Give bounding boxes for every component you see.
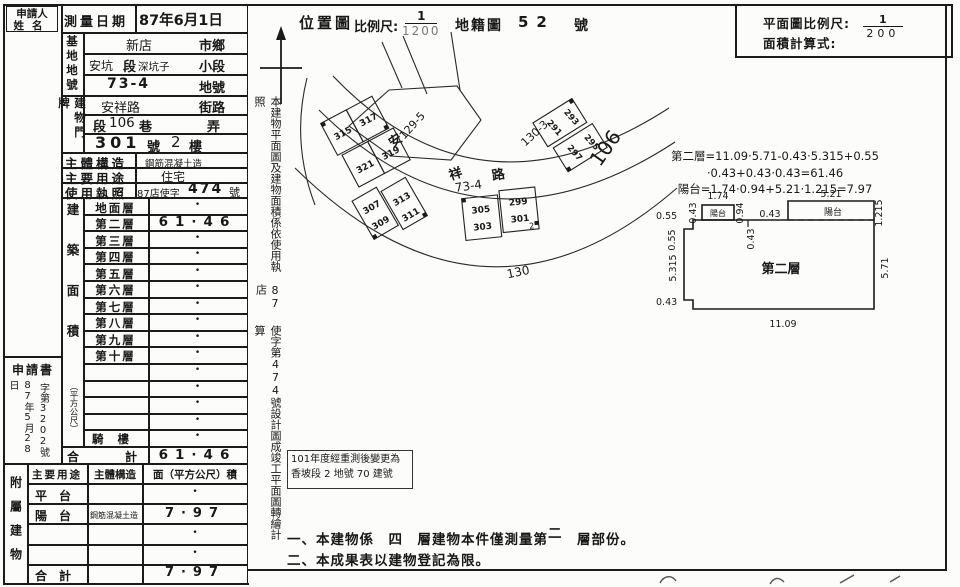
- street-name: 安祥路: [101, 97, 140, 116]
- remeasure-note-line1: 101年度經重測後變更為: [291, 453, 409, 468]
- formula-line: 第二層=11.09·5.71-0.43·5.315+0.55: [655, 148, 895, 165]
- large-balcony-label: 陽台: [824, 206, 842, 218]
- side-note-column: 本建物平面圖及建物面積係依使用執照 87店 使字第474號設計圖成竣工平面圖轉繪…: [254, 96, 280, 542]
- dim-label: 0.43: [688, 202, 699, 223]
- annex-row-area: •: [143, 487, 247, 497]
- building-number: 321: [355, 159, 376, 177]
- left-table-panel: 申請人 姓名 測量日期 87年6月1日 基地地號 新店 市鄉 安坑 段 深坑子 …: [3, 4, 248, 584]
- floor-row-value: •: [150, 382, 245, 392]
- survey-document: 申請人 姓名 測量日期 87年6月1日 基地地號 新店 市鄉 安坑 段 深坑子 …: [0, 0, 960, 587]
- note-1-handwritten-floor: 二: [548, 522, 563, 542]
- survey-date-value: 87年6月1日: [139, 9, 223, 30]
- building-number: 293: [561, 108, 580, 128]
- cadastral-sheet-number: 52: [518, 13, 555, 31]
- branch-road-line: [403, 36, 427, 94]
- floor-row-value: •: [150, 200, 245, 210]
- site-section-mid: 段: [123, 56, 136, 75]
- dim-label: 0.55: [667, 229, 678, 250]
- annex-row-structure: 鋼筋混凝土造: [90, 510, 138, 521]
- site-lot-suffix: 地號: [199, 77, 225, 96]
- building-number: 315: [333, 125, 354, 143]
- divider: [3, 356, 61, 358]
- lane-post: 巷: [139, 116, 152, 135]
- annex-row-use: 陽台: [35, 507, 83, 524]
- site-group-label: 基地地號: [61, 34, 83, 93]
- house-number-unit: 號: [147, 136, 160, 155]
- divider: [27, 483, 247, 485]
- annex-row-area: 7·97: [143, 506, 247, 521]
- building-number: 297: [565, 143, 584, 163]
- dim-label: 1.74: [707, 191, 728, 202]
- dim-label: 0.43: [759, 209, 780, 220]
- note-1-post: 層部份。: [563, 532, 636, 548]
- floor-row-label: 第九層: [85, 332, 146, 348]
- license-pre: 87店使字: [137, 185, 180, 200]
- building-number: 307: [362, 199, 383, 217]
- note-2: 二、本成果表以建物登記為限。: [287, 549, 490, 569]
- plan-scale-numerator: 1: [863, 13, 903, 27]
- area-formula-label: 面積計算式:: [763, 33, 837, 52]
- building-number: 305: [471, 205, 491, 217]
- application-number: 字第3202號: [34, 380, 52, 460]
- site-subsection: 深坑子: [138, 59, 170, 74]
- annex-header-area: 面（平方公尺）積: [143, 467, 247, 482]
- dim-label: 1.215: [874, 199, 885, 226]
- dim-label: 5.21: [820, 189, 841, 200]
- applicant-name-box: 申請人 姓名: [6, 6, 58, 32]
- floor-row-value: •: [150, 249, 245, 259]
- floor-row-value: •: [150, 266, 245, 276]
- divider: [61, 32, 247, 34]
- site-section: 安坑: [89, 57, 113, 74]
- dim-label: 0.43: [746, 228, 757, 249]
- floor-area-side-label: 建築面積: [61, 201, 83, 367]
- floor-unit: 樓: [189, 136, 202, 155]
- building-cluster-center: 305 303 299 301 2: [461, 187, 539, 240]
- location-map: 129-5 130-3 106 安 祥 路 73-4 130 315 317 3…: [285, 30, 680, 325]
- left-boundary-arc: [301, 78, 315, 205]
- site-subsection-suffix: 小段: [199, 56, 225, 75]
- plan-scale-denominator: 200: [863, 27, 903, 40]
- dim-label: 0.94: [735, 202, 746, 223]
- survey-date-label: 測量日期: [64, 11, 128, 30]
- small-balcony-label: 陽台: [710, 208, 726, 218]
- floor-row-label: 第八層: [85, 315, 146, 331]
- branch-road-line: [382, 42, 402, 88]
- floor-row-label: 第四層: [85, 249, 146, 265]
- street-suffix: 街路: [199, 97, 225, 116]
- annex-row-use: 平台: [35, 487, 83, 504]
- lot-label: 130: [506, 263, 531, 281]
- floor-total-value: 61·46: [150, 447, 245, 463]
- remeasure-note-line2: 香坡段 2 地號 70 建號: [291, 468, 409, 483]
- side-note-part1: 本建物平面圖及建物面積係依使用執照: [251, 96, 283, 276]
- divider: [27, 544, 247, 546]
- plan-scale-fraction: 1 200: [863, 8, 903, 40]
- target-building-number: 301: [510, 214, 530, 226]
- dim-label: 5.71: [880, 257, 891, 278]
- house-number: 301: [95, 133, 140, 152]
- branch-road-line: [451, 32, 460, 90]
- application-date: 87年5月28日: [11, 380, 29, 460]
- floor-row-value: •: [150, 415, 245, 425]
- annex-total-label: 合計: [35, 567, 83, 584]
- floor-row-value: •: [150, 332, 245, 342]
- lot-boundary-arc: [295, 168, 677, 267]
- dim-label: 0.55: [656, 211, 677, 222]
- floor-row-value: •: [150, 299, 245, 309]
- target-floor-mark: 2: [529, 221, 535, 230]
- floor-number: 2: [171, 133, 181, 151]
- side-note-part2: 87店: [253, 284, 282, 320]
- floor-plan: 0.55 0.43 1.74 0.94 0.43 0.43 5.21 1.215…: [648, 183, 948, 353]
- floor-row-label: 第十層: [85, 348, 146, 364]
- second-floor-label: 第二層: [761, 261, 800, 277]
- site-lot-number: 73-4: [107, 76, 150, 92]
- applicant-label-line1: 申請人: [7, 8, 57, 20]
- license-suffix: 號: [229, 184, 240, 200]
- building-number: 311: [401, 207, 422, 225]
- plan-scale-label: 平面圖比例尺:: [763, 13, 850, 32]
- floor-row-value: •: [150, 315, 245, 325]
- dim-label: 0.43: [656, 297, 677, 308]
- applicant-label-line2: 姓名: [7, 20, 57, 32]
- floor-row-label: 騎樓: [87, 431, 148, 447]
- floor-row-value: •: [150, 282, 245, 292]
- building-number: 309: [371, 215, 392, 233]
- dim-label: 11.09: [769, 319, 796, 330]
- lot-label: 73-4: [454, 177, 483, 195]
- annex-total-value: 7·97: [143, 565, 247, 580]
- lane-number: 106: [109, 115, 135, 131]
- floor-row-value: 61·46: [150, 214, 245, 230]
- note-1-pre: 一、本建物係 四 層建物本件僅測量第: [287, 532, 548, 548]
- road-name-char: 路: [491, 166, 508, 184]
- annex-header-use: 主要用途: [29, 467, 85, 482]
- building-number: 299: [508, 197, 528, 209]
- floor-row-value: •: [150, 431, 245, 441]
- building-number: 303: [473, 222, 493, 234]
- floor-row-label: 第五層: [85, 266, 146, 282]
- floor-row-label: 第二層: [85, 216, 146, 232]
- remeasure-note-box: 101年度經重測後變更為 香坡段 2 地號 70 建號: [287, 450, 413, 489]
- floor-row-value: •: [150, 398, 245, 408]
- building-cluster-sw: 307 309 313 311: [352, 172, 427, 244]
- divider: [135, 4, 137, 32]
- floor-area-unit-label: （平方公尺）: [63, 370, 83, 444]
- note-1: 一、本建物係 四 層建物本件僅測量第二 層部份。: [287, 528, 635, 548]
- plan-scale-box: 平面圖比例尺: 1 200 面積計算式:: [735, 4, 953, 58]
- scan-handwriting-marks: [650, 571, 920, 586]
- floor-row-label: 第七層: [85, 299, 146, 315]
- address-group-label: 建物門牌: [61, 97, 83, 150]
- dim-label: 5.315: [668, 254, 679, 281]
- application-title: 申請書: [12, 361, 54, 378]
- annex-header-structure: 主體構造: [89, 467, 141, 482]
- annex-row-area: •: [143, 548, 247, 558]
- floor-row-label: 第三層: [85, 233, 146, 249]
- annex-row-area: •: [143, 528, 247, 538]
- annex-side-label: 附屬建物: [6, 466, 26, 581]
- site-city-suffix: 市鄉: [199, 35, 225, 54]
- floor-row-label: 地面層: [85, 200, 146, 216]
- floor-row-label: 第六層: [85, 282, 146, 298]
- building-number: 313: [392, 191, 413, 209]
- side-note-part3: 使字第474號設計圖成竣工平面圖轉繪計算: [251, 325, 283, 542]
- use-value: 住宅: [161, 168, 185, 185]
- scale-numerator: 1: [405, 9, 437, 24]
- formula-line: ·0.43+0.43·0.43=61.46: [655, 165, 895, 182]
- floor-row-value: •: [150, 348, 245, 358]
- floor-row-value: •: [150, 365, 245, 375]
- license-number: 474: [188, 181, 223, 197]
- site-city: 新店: [99, 35, 179, 54]
- floor-row-value: •: [150, 233, 245, 243]
- alley-suffix: 弄: [207, 116, 220, 135]
